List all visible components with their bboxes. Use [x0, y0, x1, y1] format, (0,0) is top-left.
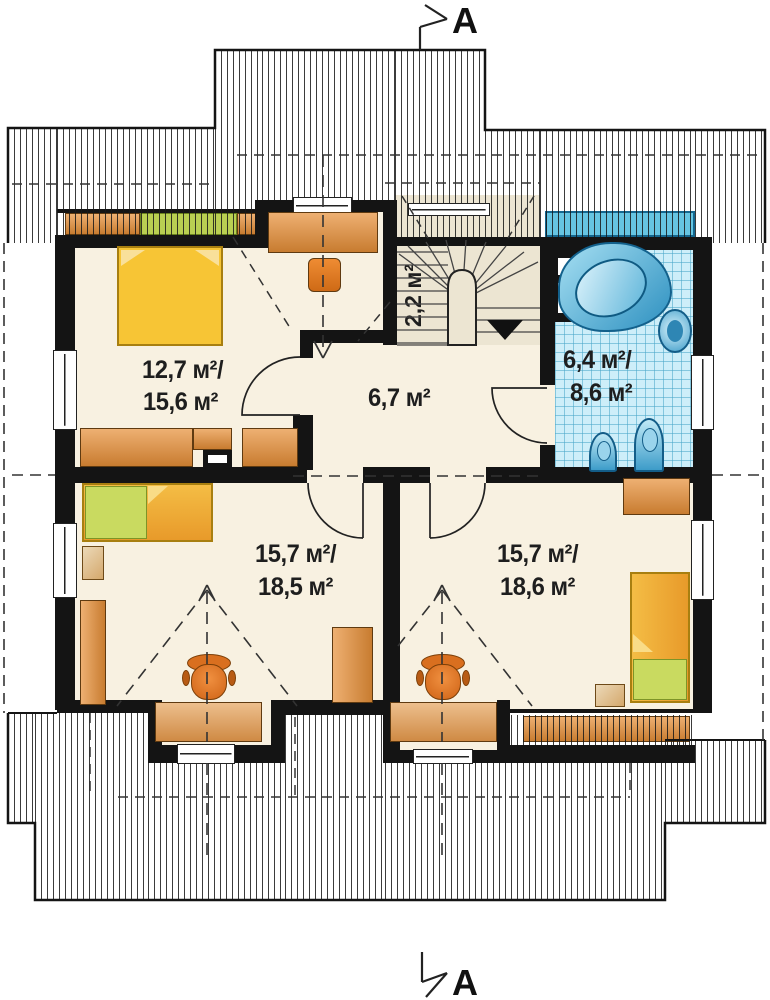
stairwell-area-label: 2,2 м²: [400, 248, 427, 343]
wall: [400, 750, 413, 763]
chair-seat: [191, 664, 227, 700]
sink: [658, 309, 692, 353]
knee-wall-line-right: [510, 709, 695, 713]
wall: [262, 200, 295, 212]
single-bed: [630, 572, 690, 703]
room-right-area-label: 18,6 м²: [500, 573, 575, 602]
roof-hatch: [540, 130, 695, 237]
roof-hatch: [8, 128, 57, 243]
toilet: [589, 432, 617, 472]
window: [53, 350, 77, 430]
bed-pillow: [633, 659, 687, 700]
desk: [390, 702, 497, 742]
room-left-area-label: 18,5 м²: [258, 573, 333, 602]
roof-hatch: [57, 128, 215, 235]
window: [53, 523, 77, 598]
wall: [473, 750, 510, 763]
bedroom-area-label: 15,6 м²: [143, 388, 218, 417]
wall-exterior-right: [693, 600, 712, 713]
dresser: [623, 478, 690, 515]
wall-exterior-right: [693, 237, 712, 355]
window: [691, 355, 714, 430]
desk-chair: [419, 656, 467, 704]
hall-area-label: 6,7 м²: [368, 384, 430, 413]
chair-armrest: [228, 670, 236, 686]
roof-hatch: [35, 713, 148, 900]
dormer-window: [408, 203, 490, 216]
bathtub-basin: [566, 248, 656, 328]
cabinet: [80, 428, 193, 467]
blanket-fold: [148, 486, 168, 504]
wall: [300, 330, 313, 358]
blanket-fold: [633, 634, 653, 652]
wall: [363, 467, 430, 483]
dormer-window: [177, 744, 235, 764]
room-right-area-label: 15,7 м²/: [497, 540, 578, 569]
roof-hatch: [148, 763, 285, 900]
chair-armrest: [182, 670, 190, 686]
wall-exterior-left: [55, 235, 75, 350]
bidet: [634, 418, 664, 472]
bathroom-area-label: 8,6 м²: [570, 379, 632, 408]
wall: [510, 745, 695, 763]
roof-hatch: [285, 715, 385, 900]
section-marker-top-label: A: [452, 0, 478, 42]
wall: [148, 745, 177, 763]
roof-hatch: [695, 130, 765, 243]
roof-hatch: [8, 713, 35, 823]
chimney: [203, 450, 232, 468]
sink-basin: [667, 320, 683, 342]
bedside-mat: [82, 546, 104, 580]
toilet-bowl: [597, 441, 611, 461]
desk: [155, 702, 262, 742]
wall: [235, 745, 285, 763]
section-marker-top: [420, 5, 447, 50]
bed-pillow: [121, 250, 145, 266]
roof-hatch: [262, 50, 395, 200]
dormer-window: [413, 749, 473, 764]
chair-seat: [425, 664, 461, 700]
chair-armrest: [416, 670, 424, 686]
bedroom-area-label: 12,7 м²/: [142, 356, 223, 385]
floor-plan: 12,7 м²/ 15,6 м² 6,7 м² 2,2 м² 6,4 м²/ 8…: [0, 0, 770, 1000]
cabinet: [242, 428, 298, 467]
wall: [57, 467, 307, 483]
section-marker-bottom-label: A: [452, 962, 478, 1000]
chair-armrest: [462, 670, 470, 686]
room-left-area-label: 15,7 м²/: [255, 540, 336, 569]
wall: [395, 237, 540, 246]
window: [691, 520, 714, 600]
bed-pillow: [85, 486, 147, 539]
roof-hatch: [385, 763, 665, 900]
wall-stairwell: [383, 200, 397, 345]
single-bed: [82, 483, 213, 542]
nightstand: [595, 684, 625, 707]
corner-bathtub: [558, 242, 672, 332]
cabinet: [193, 428, 232, 450]
bed-pillow: [195, 250, 219, 266]
bidet-bowl: [642, 428, 658, 452]
wardrobe: [332, 627, 373, 703]
double-bed: [117, 246, 223, 346]
wall-exterior-left: [55, 598, 75, 710]
roof-hatch: [485, 130, 540, 238]
bathroom-area-label: 6,4 м²/: [563, 346, 631, 375]
section-marker-bottom: [422, 952, 447, 997]
wall-bathroom: [540, 237, 555, 385]
desk-chair: [185, 656, 233, 704]
pouf: [308, 258, 341, 292]
wardrobe: [80, 600, 106, 705]
dresser: [268, 212, 378, 253]
